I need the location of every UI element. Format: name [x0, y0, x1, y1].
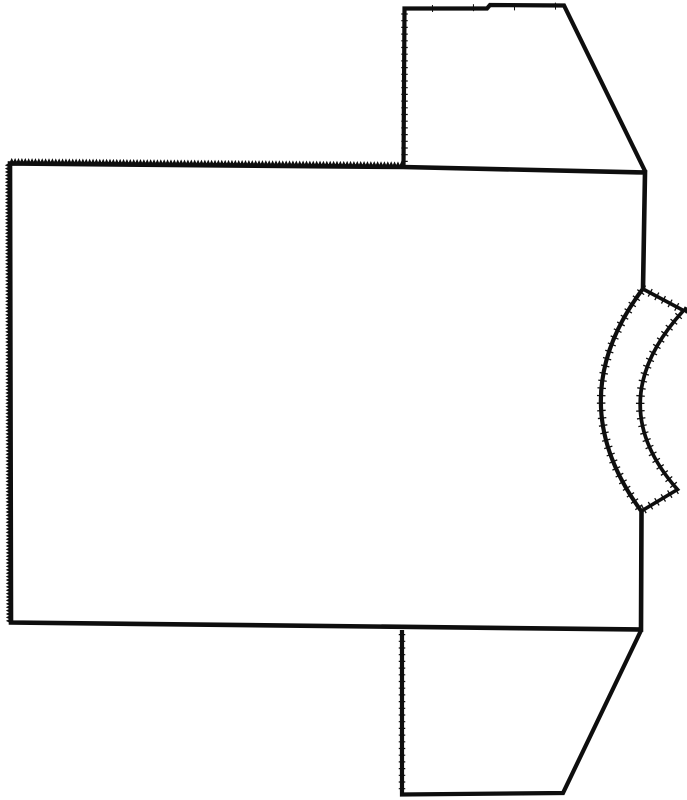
top-sleeve-outline: [404, 5, 646, 172]
body-panel-outline: [10, 164, 645, 630]
bottom-sleeve-outline: [402, 630, 641, 795]
pattern-drawing: [0, 0, 687, 800]
scanned-pattern-page: [0, 0, 687, 800]
